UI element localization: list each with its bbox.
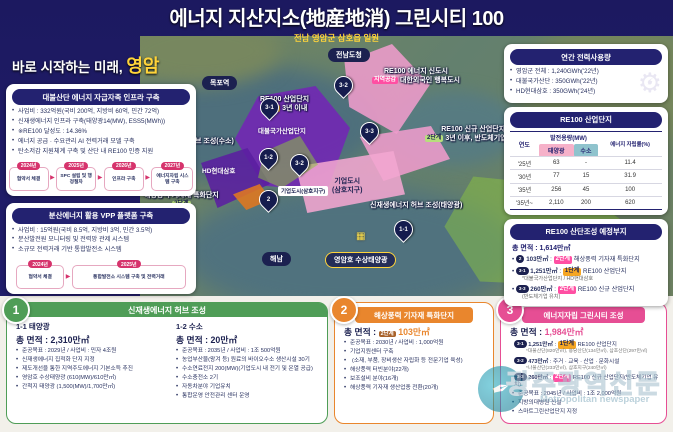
zone-badge: 2 [516, 255, 525, 263]
bullet: ※RE100 달성도 : 14.36% [12, 128, 190, 136]
area-label: 총 면적 : [510, 327, 542, 337]
callout-energy-newtown-line2: 지역공감 대한외국인 행복도시 [372, 77, 460, 86]
callout-text: 3년 이내 [282, 105, 307, 112]
timeline-year: 2024년 [28, 260, 52, 268]
item-note: *나불산단(233만㎡), 삼호지구(240만㎡) [526, 366, 661, 372]
left-column: 대불산단 에너지 자급자족 인프라 구축 사업비 : 332억원(국비 200억… [6, 84, 196, 301]
card-re100-table: RE100 산업단지 연도 발전용량(MW) 에너지 자립률(%) 태양광 수소 [504, 107, 668, 215]
colon: : [559, 268, 561, 275]
site-desc: 해상풍력 기자재 특화단지 [574, 256, 640, 263]
bullet: 기업지원센터 구축 [344, 349, 488, 356]
bullet: 사업비 : 15억원(국비 8.5억, 지방비 3억, 민간 3.5억) [12, 227, 190, 235]
panel-offshore-wind-title: 해상풍력 기자재 특화단지 [355, 307, 474, 323]
card-annual-power-title: 연간 전력사용량 [510, 49, 662, 65]
colon: : [555, 342, 557, 348]
card-infra-title: 대불산단 에너지 자급자족 인프라 구축 [12, 89, 190, 105]
greencity-item: 3-3 260만㎡ : 2단계 RE100 신규 산업단지(반도체기업 유치) [514, 373, 661, 389]
cell-h2: 45 [574, 183, 599, 196]
lightning-icon: ⚡ [647, 78, 654, 88]
stage-chip: 2단계 [554, 256, 572, 264]
greencity-area: 총 면적 : 1,984만㎡ [510, 325, 661, 338]
solar-bullets: 준공목표 : 2029년 / 사업비 : 민자 4조원 신재생에너지 집적화 단… [16, 348, 162, 391]
bullet: 신재생에너지 인프라 구축(태양광14(MW), ESS5(MWh)) [12, 118, 190, 126]
wind-bullets: 준공목표 : 2030년 / 사업비 : 1,000억원 기업지원센터 구축 (… [344, 340, 488, 392]
bullet: HD현대삼호 : 350GWh('24년) [510, 88, 628, 96]
card-vpp: 분산에너지 활용 VPP 플랫폼 구축 사업비 : 15억원(국비 8.5억, … [6, 203, 196, 295]
col-solar: 태양광 [539, 144, 574, 157]
card-site-plan-title: RE100 산단조성 예정부지 [510, 224, 662, 240]
timeline-year: 2027년 [161, 162, 185, 170]
colon: : [550, 256, 552, 263]
bullet: 해상풍력 기자재 생산업종 전환(20개) [344, 385, 488, 392]
annual-power-bullets: 영암군 전체 : 1,240GWh('22년) 대불국가산단 : 350GWh(… [510, 68, 628, 96]
greencity-item: 3-1 1,251만㎡ : 1단계 RE100 산업단지 *대불산단(820만㎡… [514, 340, 661, 355]
bullet: 탄소저감 지원체계 구축 및 산단 내 RE100 인증 지원 [12, 148, 190, 156]
timeline-label: SPC 설립 및 행정절차 [56, 167, 96, 191]
site-desc: RE100 산업단지 [583, 268, 626, 275]
cell-rate: 100 [598, 183, 662, 196]
panel-number-badge: 2 [330, 296, 358, 324]
bullet: 신재생에너지 집적화 단지 지정 [16, 357, 162, 364]
cell-solar: 256 [539, 183, 574, 196]
bullet: 해상풍력 터빈분야(22개) [344, 367, 488, 374]
slogan: 바로 시작하는 미래, 영암 [12, 52, 160, 78]
cell-solar: 2,110 [539, 196, 574, 209]
re100-table: 연도 발전용량(MW) 에너지 자립률(%) 태양광 수소 '25년 63 - … [510, 131, 662, 210]
colon: : [550, 375, 552, 381]
bullet: 대불국가산단 : 350GWh('22년) [510, 78, 628, 86]
bullet: 준공목표 : 2029년 / 사업비 : 민자 4조원 [16, 348, 162, 355]
hydrogen-area: 총 면적 : 20만㎡ [176, 333, 322, 346]
header: 에너지 지산지소(地産地消) 그린시티 100 전남 영암군 삼호읍 일원 [0, 2, 673, 44]
greencity-bullets: 준공목표 : 2045년 / 사업비 : 1조 2,000억원 지방의대병원 신… [512, 391, 661, 416]
solar-column: 1-1 태양광 총 면적 : 2,310만㎡ 준공목표 : 2029년 / 사업… [7, 317, 167, 402]
timeline-label: 인프라 구축 [104, 167, 144, 191]
card-vpp-bullets: 사업비 : 15억원(국비 8.5억, 지방비 3억, 민간 3.5억) 분산발… [12, 227, 190, 255]
timeline-step: 2024년 협약서 체결 [16, 260, 64, 289]
bullet: 보조설비 분야(16개) [344, 376, 488, 383]
item-area: 473만㎡ [528, 359, 548, 365]
slogan-text: 바로 시작하는 미래, [12, 60, 126, 75]
site-note: (반도체기업 유치) [522, 294, 662, 301]
place-haenam: 해남 [262, 252, 291, 266]
area-value: 1,984만㎡ [545, 327, 584, 337]
bullet: 지방의대병원 신설 [512, 400, 661, 407]
stage-chip: 지역공감 [372, 77, 398, 85]
arrow-icon: ▶ [65, 273, 71, 280]
hydrogen-bullets: 준공목표 : 2035년 / 사업비 : 1조 500억원 농업부산물(왕겨 등… [176, 348, 322, 400]
panel-offshore-wind: 2 해상풍력 기자재 특화단지 총 면적 : 2단계 103만㎡ 준공목표 : … [334, 302, 494, 424]
arrow-icon: ▶ [145, 174, 151, 181]
bullet: 제도개선을 통한 지역주도에너지 기본소득 추진 [16, 366, 162, 373]
panel-green-city: 3 에너지자립 그린시티 조성 총 면적 : 1,984만㎡ 3-1 1,251… [500, 302, 667, 424]
card-annual-power: 연간 전력사용량 영암군 전체 : 1,240GWh('22년) 대불국가산단 … [504, 44, 668, 103]
site-area: 260만㎡ [530, 286, 552, 293]
solar-grid-icon: ▦ [356, 234, 364, 239]
card-vpp-title: 분산에너지 활용 VPP 플랫폼 구축 [12, 208, 190, 224]
page-title: 에너지 지산지소(地産地消) 그린시티 100 [0, 2, 673, 31]
col-h2: 수소 [574, 144, 599, 157]
bullet: 소규모 전력거래 기반 통합발전소 시스템 [12, 246, 190, 254]
card-re100-title: RE100 산업단지 [510, 112, 662, 128]
stage-chip: 2단계 [558, 286, 576, 294]
card-site-plan: RE100 산단조성 예정부지 총 면적 : 1,614만㎡ • 2 103만㎡… [504, 219, 668, 306]
cell-h2: 15 [574, 170, 599, 183]
bullet: 간척지 태양광 (1,500(MW)/1,700만㎡) [16, 384, 162, 391]
cell-solar: 63 [539, 157, 574, 170]
site-total-area: 총 면적 : 1,614만㎡ [512, 243, 662, 253]
label-hd-hyundai: HD현대삼호 [202, 168, 235, 176]
callout-text: 대한외국인 행복도시 [400, 77, 460, 84]
wind-area: 총 면적 : 2단계 103만㎡ [344, 325, 488, 338]
table-row: '25년 63 - 11.4 [510, 157, 662, 170]
label-bizcity-line1: 기업도시 [332, 178, 362, 187]
cell-year: '25년 [510, 157, 539, 170]
item-desc: RE100 산업단지 [578, 342, 617, 348]
item-area: 1,251만㎡ [528, 342, 553, 348]
timeline-step: 2027년 에너지자립 시스템 구축 [151, 162, 193, 191]
site-note: *대불국가산업단지 / HD현대삼호 [522, 276, 662, 283]
table-row: '35년 256 45 100 [510, 183, 662, 196]
item-area: 260만㎡ [528, 375, 548, 381]
cell-rate: 620 [598, 196, 662, 209]
panel-renewable-hub: 1 신재생에너지 허브 조성 1-1 태양광 총 면적 : 2,310만㎡ 준공… [6, 302, 328, 424]
timeline-label: 협약서 체결 [16, 265, 64, 289]
tag-bizcity: 기업도시(삼호지구) [278, 186, 328, 196]
col-year: 연도 [510, 131, 539, 156]
arrow-icon: ▶ [50, 174, 56, 181]
label-bizcity: 기업도시 (삼호지구) [332, 178, 362, 196]
table-row: '35년~ 2,110 200 620 [510, 196, 662, 209]
col-capacity: 발전용량(MW) [539, 131, 598, 144]
cell-rate: 11.4 [598, 157, 662, 170]
col-rate: 에너지 자립률(%) [598, 131, 662, 156]
site-desc: RE100 신규 산업단지 [578, 286, 635, 293]
item-note: *대불산단(820만㎡), 용당산단(134만㎡), 삼호산단(297만㎡) [526, 349, 661, 355]
bullet: 에너지 공급 · 수요관리 AI 전력거래 모델 구축 [12, 138, 190, 146]
stage-chip: 1단계 [558, 341, 576, 349]
cell-h2: 200 [574, 196, 599, 209]
area-label: 총 면적 : [344, 327, 376, 337]
callout-energy-newtown: RE100 에너지 신도시 지역공감 대한외국인 행복도시 [372, 68, 460, 86]
bullet: 농업부산물(왕겨 등) 원료의 바이오수소 생산시설 30기 [176, 357, 322, 364]
timeline-step: 2026년 인프라 구축 [104, 162, 144, 191]
cell-h2: - [574, 157, 599, 170]
vpp-timeline: 2024년 협약서 체결 ▶ 2025년 통합발전소 시스템 구축 및 전력거래 [12, 260, 190, 289]
bullet: 수소충전소 2기 [176, 375, 322, 382]
bullet: 자동차분야 기업유치 [176, 384, 322, 391]
arrow-icon: ▶ [97, 174, 103, 181]
card-infra: 대불산단 에너지 자급자족 인프라 구축 사업비 : 332억원(국비 200억… [6, 84, 196, 196]
bullet: 수소연료전지 200(MW)(기업도시 내 전기 및 온열 공급) [176, 366, 322, 373]
cell-year: '35년 [510, 183, 539, 196]
label-daebul: 대불국가산업단지 [258, 128, 306, 136]
bullet: 사업비 : 332억원(국비 200억, 지방비 60억, 민간 72억) [12, 108, 190, 116]
hydrogen-subhead: 1-2 수소 [176, 321, 322, 332]
table-row: '30년 77 15 31.9 [510, 170, 662, 183]
greencity-item: 3-2 473만㎡ : 주거 · 교육 · 산업 · 문화시설 *나불산단(23… [514, 357, 661, 372]
page-subtitle: 전남 영암군 삼호읍 일원 [0, 32, 673, 44]
site-area: 103만㎡ [526, 256, 548, 263]
cell-year: '35년~ [510, 196, 539, 209]
bullet: 분산발전원 모니터링 및 전력망 관제 시스템 [12, 236, 190, 244]
place-mokpo-station: 목포역 [202, 76, 237, 90]
site-area: 1,251만㎡ [530, 268, 557, 275]
timeline-year: 2025년 [117, 260, 141, 268]
right-column: 연간 전력사용량 영암군 전체 : 1,240GWh('22년) 대불국가산단 … [504, 44, 668, 310]
place-jeonnam-office: 전남도청 [328, 48, 370, 62]
timeline-label: 에너지자립 시스템 구축 [151, 167, 193, 191]
gear-energy-icon: ⚙⚡ [638, 70, 662, 97]
callout-solar-hub: 신재생에너지 허브 조성(태양광) [370, 202, 462, 211]
bullet: 영암호 수상태양광 (610(MW)/610만㎡) [16, 375, 162, 382]
stage-chip: 2단계 [425, 135, 443, 143]
bullet: 영암군 전체 : 1,240GWh('22년) [510, 68, 628, 76]
timeline-label: 통합발전소 시스템 구축 및 전력거래 [72, 265, 186, 289]
zone-badge: 3-2 [514, 357, 527, 365]
timeline-year: 2024년 [17, 162, 41, 170]
label-bizcity-line2: (삼호지구) [332, 187, 362, 196]
item-desc: 주거 · 교육 · 산업 · 문화시설 [553, 359, 619, 365]
slogan-highlight: 영암 [126, 56, 159, 76]
timeline-year: 2026년 [112, 162, 136, 170]
cell-rate: 31.9 [598, 170, 662, 183]
stage-chip: 1단계 [563, 268, 581, 276]
timeline-step: 2024년 협약서 체결 [9, 162, 49, 191]
hydrogen-column: 1-2 수소 총 면적 : 20만㎡ 준공목표 : 2035년 / 사업비 : … [167, 317, 327, 402]
site-item: • 3-1 1,251만㎡ : 1단계 RE100 산업단지 *대불국가산업단지… [512, 267, 662, 283]
site-item: • 2 103만㎡ : 2단계 해상풍력 기자재 특화단지 [512, 255, 662, 264]
zone-badge: 3-3 [514, 373, 527, 381]
stage-chip: 2단계 [379, 331, 396, 337]
cell-year: '30년 [510, 170, 539, 183]
bullet: 준공목표 : 2035년 / 사업비 : 1조 500억원 [176, 348, 322, 355]
bullet: 스마트그린산업단지 지정 [512, 409, 661, 416]
site-item: • 3-3 260만㎡ : 2단계 RE100 신규 산업단지 (반도체기업 유… [512, 285, 662, 301]
infra-timeline: 2024년 협약서 체결 ▶ 2025년 SPC 설립 및 행정절차 ▶ 202… [12, 162, 190, 191]
solar-area: 총 면적 : 2,310만㎡ [16, 333, 162, 346]
poster-background: 목포역 전남도청 해남 영암호 수상태양광 ▦ RE100 에너지 신도시 지역… [0, 0, 673, 432]
solar-subhead: 1-1 태양광 [16, 321, 162, 332]
area-value: 103만㎡ [398, 327, 430, 337]
bullet-sub: (소재, 부품, 장비생산 자립화 등 전문기업 육성) [344, 358, 488, 365]
bullet: 준공목표 : 2030년 / 사업비 : 1,000억원 [344, 340, 488, 347]
timeline-step: 2025년 통합발전소 시스템 구축 및 전력거래 [72, 260, 186, 289]
place-lake-solar: 영암호 수상태양광 [325, 252, 396, 268]
callout-energy-newtown-line1: RE100 에너지 신도시 [372, 68, 460, 77]
cell-solar: 77 [539, 170, 574, 183]
bottom-strip: 1 신재생에너지 허브 조성 1-1 태양광 총 면적 : 2,310만㎡ 준공… [0, 296, 673, 432]
card-infra-bullets: 사업비 : 332억원(국비 200억, 지방비 60억, 민간 72억) 신재… [12, 108, 190, 156]
zone-badge: 3-1 [516, 267, 529, 275]
stage-chip: 2단계 [553, 374, 571, 382]
timeline-step: 2025년 SPC 설립 및 행정절차 [56, 162, 96, 191]
colon: : [554, 286, 556, 293]
bullet: 통합운영 안전관리 센터 운영 [176, 393, 322, 400]
panel-renewable-hub-title: 신재생에너지 허브 조성 [7, 303, 327, 317]
bullet: 준공목표 : 2045년 / 사업비 : 1조 2,000억원 [512, 391, 661, 398]
zone-badge: 3-3 [516, 285, 529, 293]
colon: : [550, 359, 552, 365]
zone-badge: 3-1 [514, 340, 527, 348]
timeline-label: 협약서 체결 [9, 167, 49, 191]
timeline-year: 2025년 [64, 162, 88, 170]
